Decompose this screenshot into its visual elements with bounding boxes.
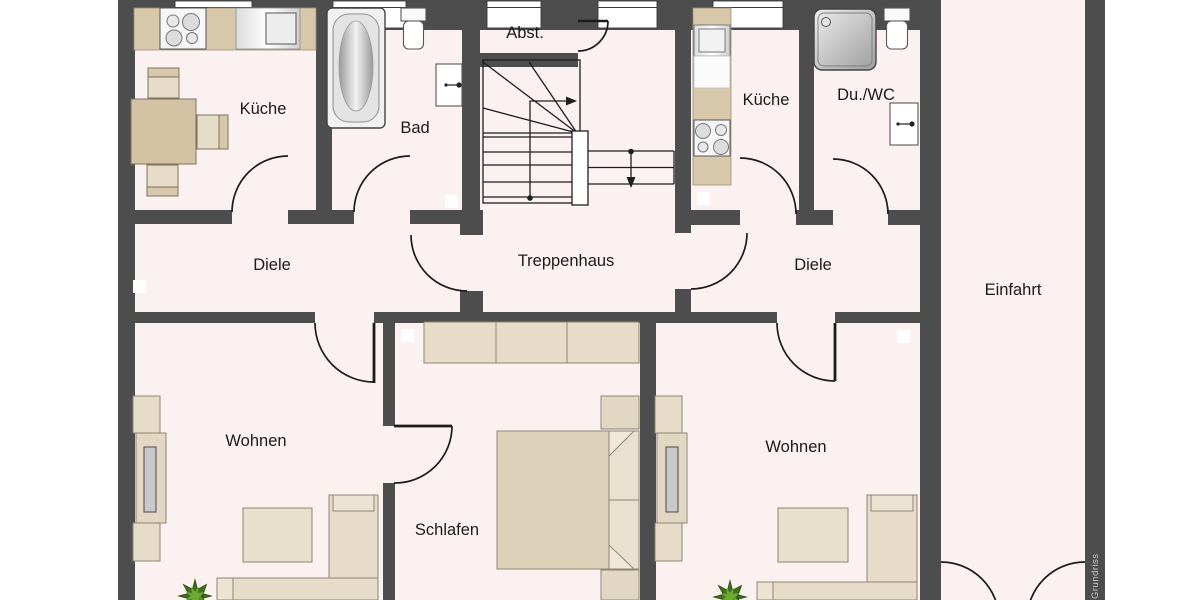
nightstand [601, 396, 639, 429]
wall-einfahrt-right [1085, 0, 1105, 600]
label-duwc: Du./WC [837, 86, 895, 104]
wall-schlafen-west-upper [383, 312, 395, 426]
label-schlafen: Schlafen [415, 521, 479, 539]
washbasin [890, 103, 918, 145]
washbasin [436, 64, 462, 106]
stair-stringer [572, 131, 588, 205]
kitchen-sink [236, 8, 300, 49]
wall-bad-abst [462, 0, 480, 212]
double-bed [497, 431, 639, 569]
wall-cabinet [655, 523, 682, 561]
floorplan-drawing: Küche Bad Abst. Küche Du./WC Diele Trepp… [0, 0, 1200, 600]
toilet [401, 8, 426, 49]
label-einfahrt: Einfahrt [985, 281, 1042, 299]
label-bad: Bad [400, 119, 429, 137]
label-abst: Abst. [506, 24, 544, 42]
dining-table [131, 99, 196, 164]
wall-cabinet [133, 396, 160, 433]
wall-abst-doorjamb [574, 0, 580, 22]
coffee-table [778, 508, 848, 562]
refrigerator [694, 56, 730, 88]
wall-cabinet [133, 523, 160, 561]
label-diele-left: Diele [253, 256, 291, 274]
shower [814, 9, 876, 70]
stove-top [694, 120, 730, 156]
nightstand [601, 570, 639, 600]
kitchen-right-fixtures [693, 8, 731, 185]
sofa [424, 322, 639, 363]
floorplan-page: Küche Bad Abst. Küche Du./WC Diele Trepp… [0, 0, 1200, 600]
wall-einfahrt-left [920, 0, 941, 600]
bathtub [327, 8, 385, 128]
wall-exterior-left [118, 0, 135, 600]
label-treppenhaus: Treppenhaus [518, 252, 615, 270]
stove-top [160, 8, 206, 49]
tv-sideboard [655, 396, 687, 561]
kitchen-sink [694, 25, 730, 56]
tv-screen [144, 447, 156, 512]
coffee-table [243, 508, 312, 562]
label-diele-right: Diele [794, 256, 832, 274]
label-wohnen-right: Wohnen [765, 438, 826, 456]
label-kueche-left: Küche [240, 100, 287, 118]
watermark-text: Grundriss [1090, 553, 1101, 599]
wall-schlafen-east [640, 322, 656, 600]
toilet [884, 8, 910, 49]
label-kueche-right: Küche [743, 91, 790, 109]
label-wohnen-left: Wohnen [225, 432, 286, 450]
wall-schlafen-west-lower [383, 483, 395, 600]
wall-treppenhaus-kueche2 [675, 0, 691, 233]
window [598, 1, 657, 28]
tv-screen [666, 447, 678, 512]
wall-kueche2-duwc [799, 0, 814, 212]
wall-cabinet [655, 396, 682, 433]
